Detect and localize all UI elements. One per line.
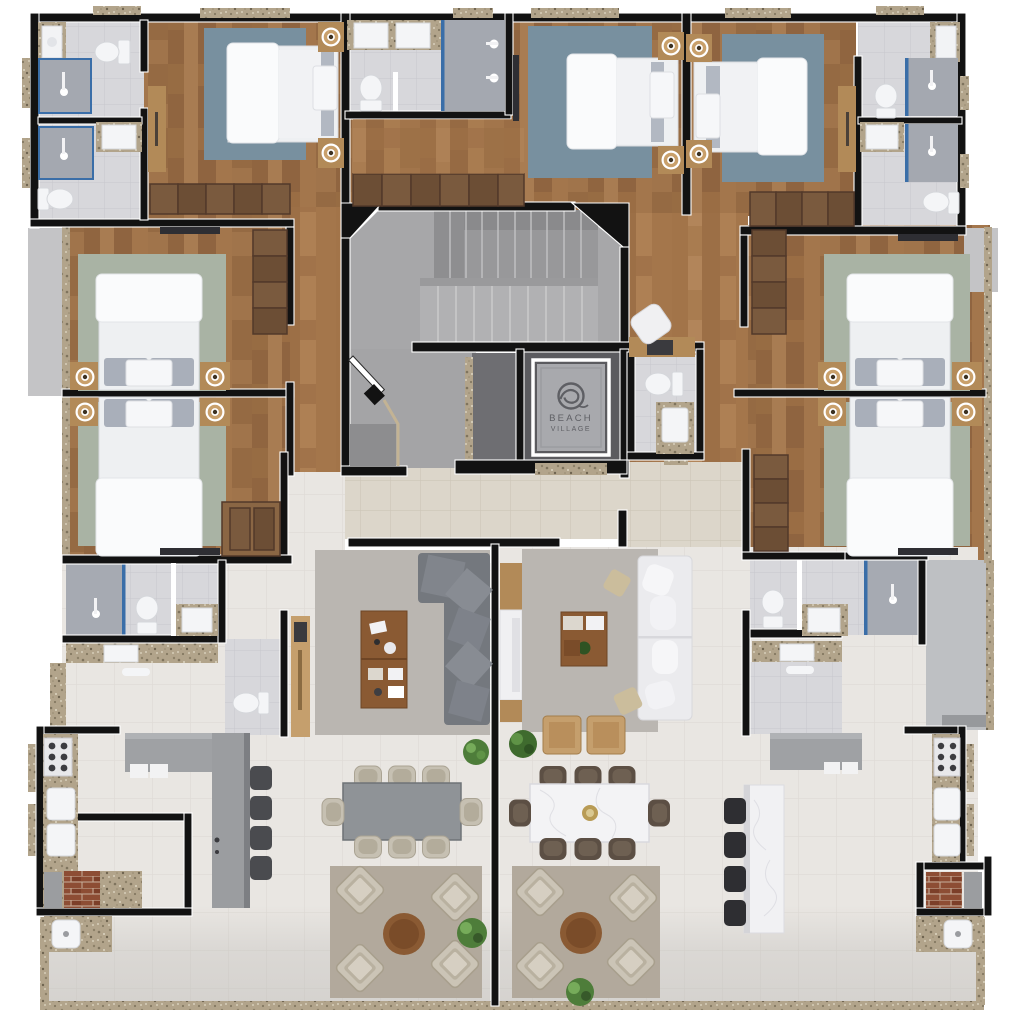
svg-text:BEACH: BEACH	[549, 413, 593, 424]
svg-text:VILLAGE: VILLAGE	[551, 426, 591, 433]
